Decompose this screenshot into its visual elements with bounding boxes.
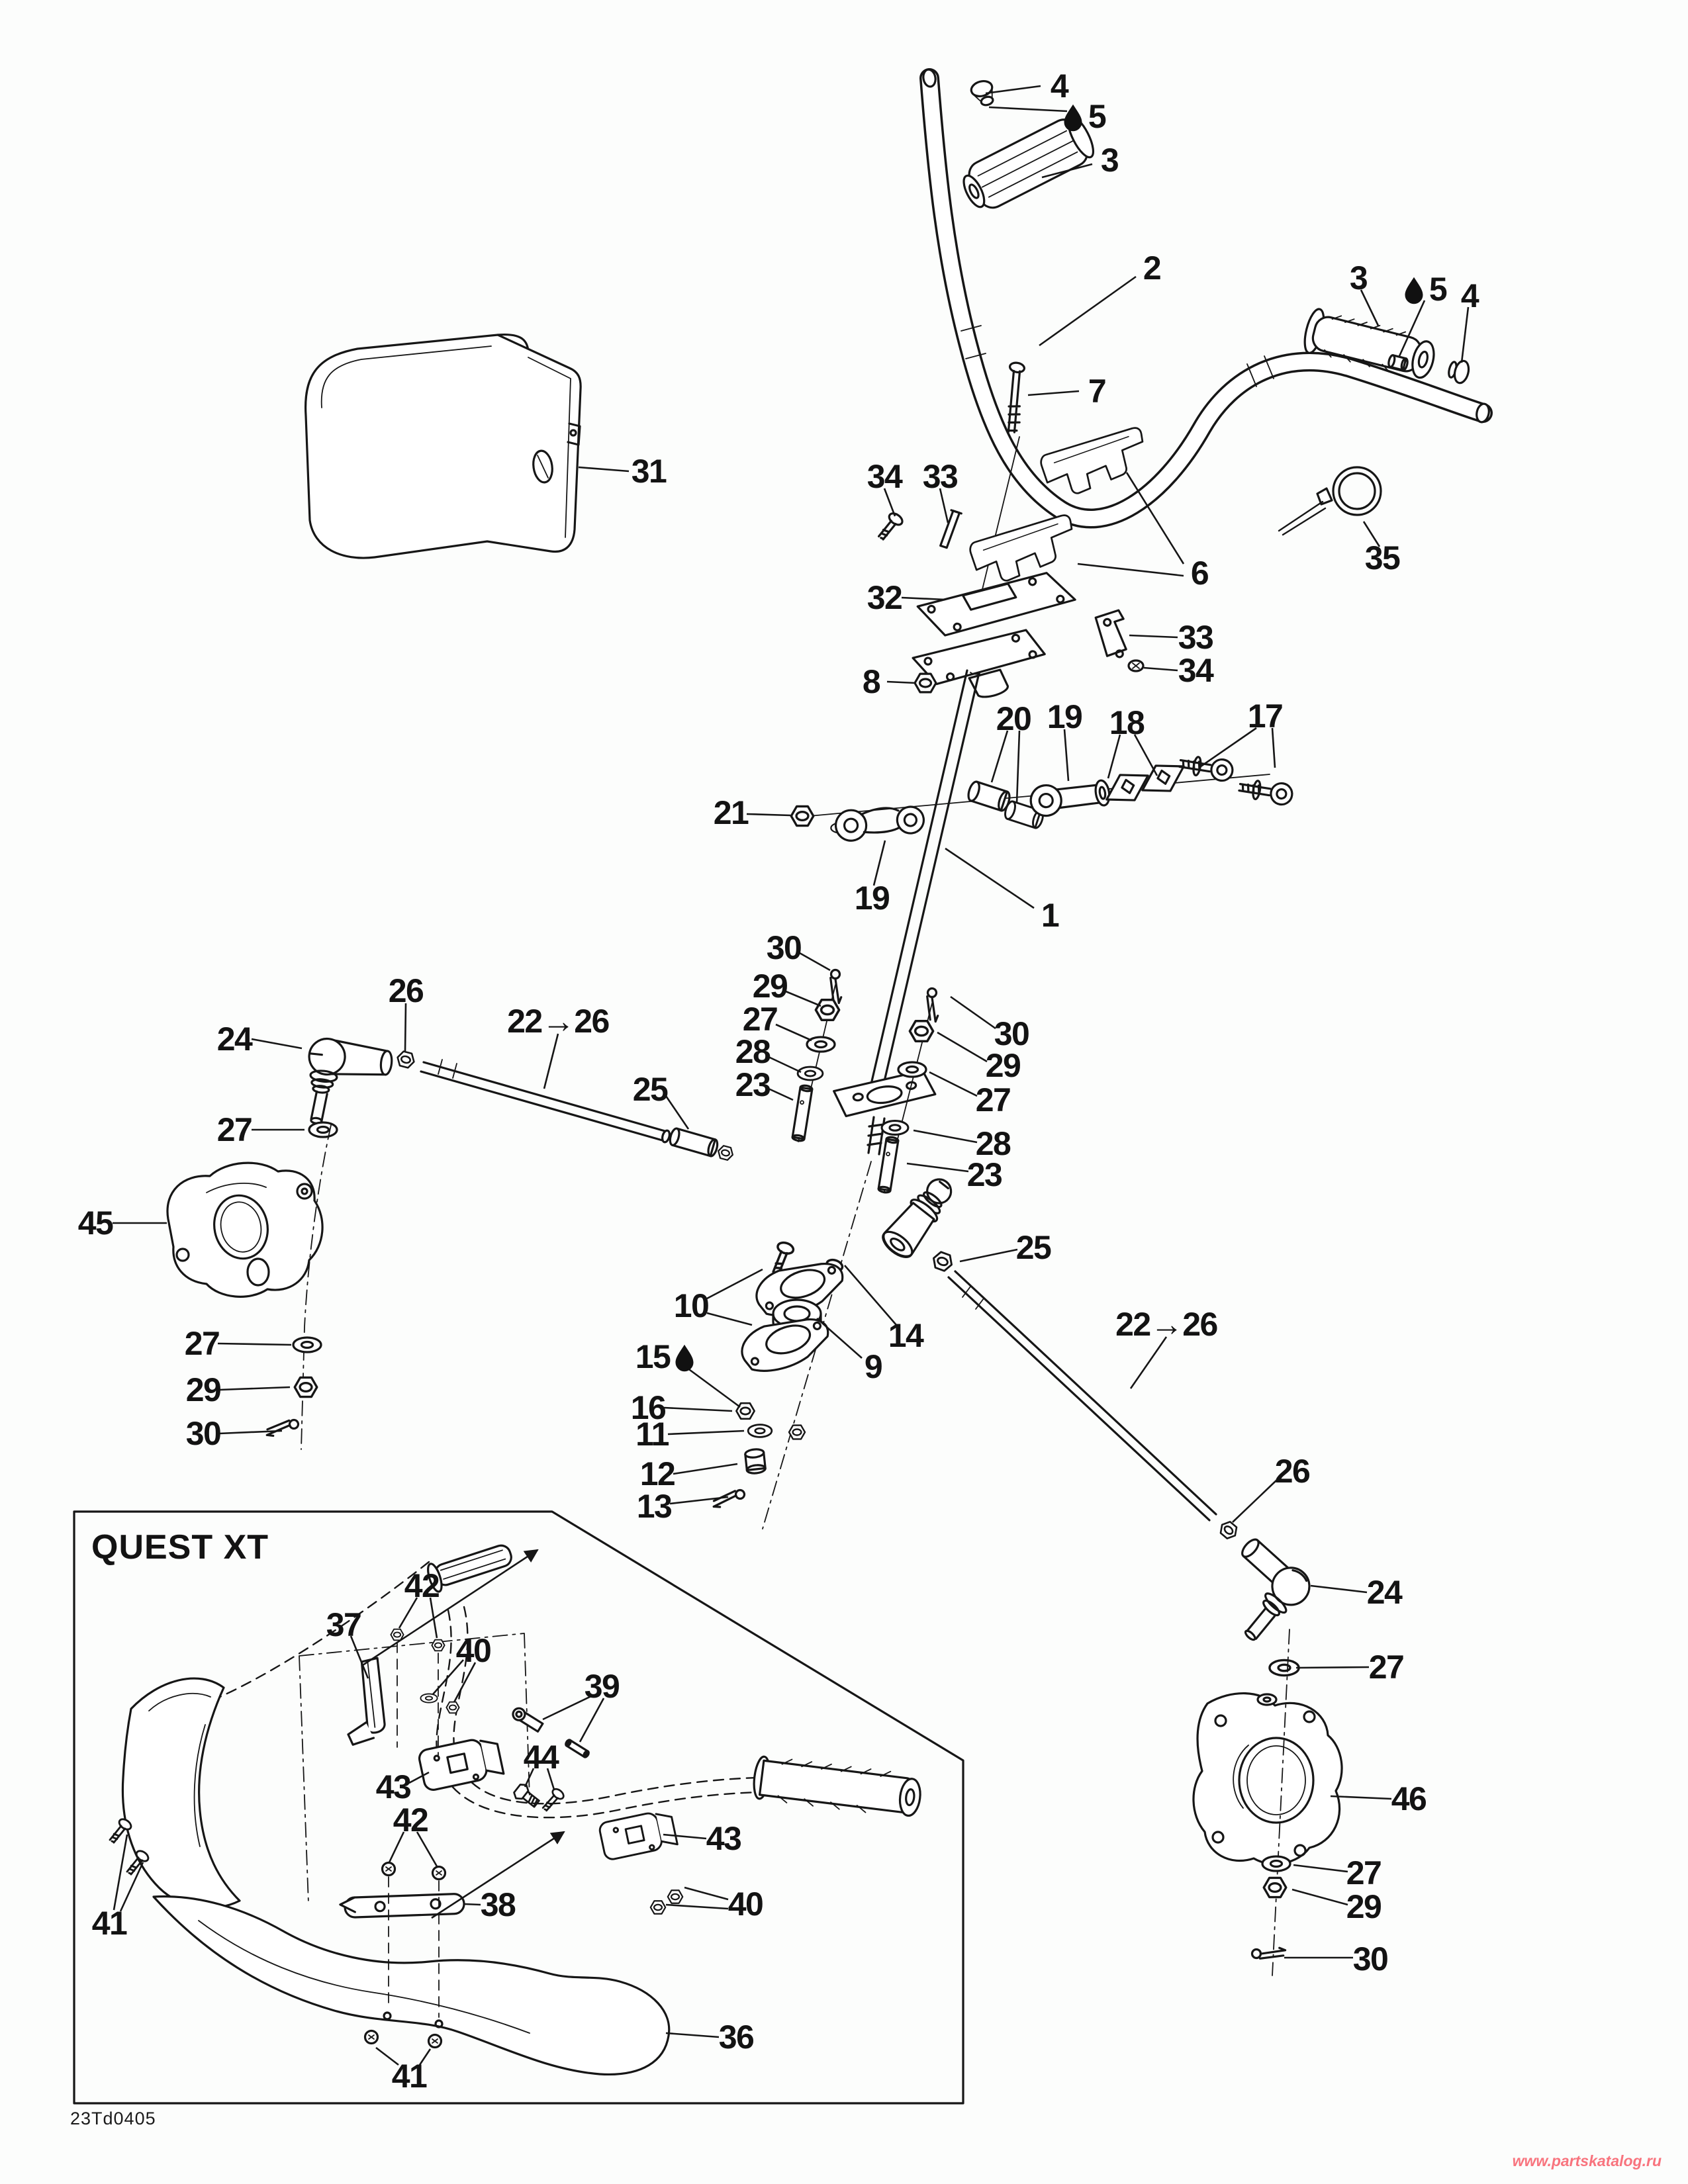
steering-support-plate-lower [912, 628, 1050, 706]
callout-36: 36 [666, 2019, 753, 2056]
callout-40: 40 [666, 1886, 763, 1923]
part-number-label: 10 [674, 1287, 709, 1324]
part-number-label: 29 [1346, 1888, 1382, 1925]
lubricant-droplet-icon [1405, 277, 1423, 304]
callout-14: 14 [845, 1265, 924, 1354]
part-number-label: 31 [632, 453, 667, 490]
callout-30: 30 [186, 1415, 282, 1452]
exploded-diagram-canvas: 4532354731343363532333482019181721191302… [0, 0, 1688, 2184]
part-number-label: 36 [719, 2019, 754, 2056]
callout-10: 10 [674, 1269, 763, 1325]
callout-30: 30 [951, 997, 1029, 1052]
part-number-label: 26 [389, 972, 424, 1009]
leader-line [769, 1089, 793, 1100]
part-number-label: 39 [585, 1668, 620, 1705]
leader-line [405, 1003, 406, 1051]
part-number-label: 27 [1346, 1854, 1382, 1891]
part-number-label: 27 [185, 1325, 220, 1362]
callout-35: 35 [1364, 522, 1400, 576]
callout-17: 17 [1201, 698, 1282, 768]
part-number-label: 19 [855, 880, 890, 917]
leader-line [1331, 1796, 1391, 1799]
part-number-label: 29 [753, 968, 788, 1005]
callout-26: 26 [1233, 1453, 1309, 1522]
leader-line [914, 1130, 977, 1142]
leader-line [1311, 1586, 1367, 1592]
leader-line [951, 997, 996, 1028]
part-number-label: 22→26 [507, 1003, 609, 1040]
inset-title: QUEST XT [91, 1527, 269, 1567]
right-knuckle-stack [1250, 1856, 1290, 1971]
part-number-label: 41 [392, 2058, 427, 2095]
part-number-label: 6 [1191, 555, 1208, 592]
steering-support-plate-upper [915, 570, 1078, 639]
leader-line [937, 1032, 987, 1062]
callout-4: 4 [986, 68, 1069, 105]
leader-line [218, 1343, 291, 1345]
part-number-label: 4 [1461, 277, 1479, 314]
callout-41: 41 [376, 2048, 430, 2095]
link-spacer-a [966, 780, 1011, 812]
part-number-label: 14 [888, 1317, 924, 1354]
callout-22→26: 22→26 [507, 1003, 609, 1089]
part-number-label: 15 [635, 1338, 671, 1375]
column-flange-nut [915, 674, 936, 692]
headlight-housing [306, 335, 581, 559]
leader-line [252, 1039, 302, 1048]
part-number-label: 29 [986, 1047, 1021, 1084]
part-number-label: 34 [1178, 652, 1214, 689]
part-number-label: 42 [404, 1567, 440, 1604]
left-end-cap [970, 79, 996, 108]
leader-line [1462, 307, 1468, 363]
leader-line [1233, 1480, 1276, 1522]
right-jam-nut [1217, 1519, 1240, 1541]
part-number-label: 18 [1109, 704, 1145, 741]
leader-line [684, 1366, 740, 1407]
steering-link-lower [833, 799, 925, 844]
part-number-label: 8 [863, 663, 880, 700]
part-number-label: 33 [923, 458, 958, 495]
callout-18: 18 [1108, 704, 1157, 778]
part-number-label: 20 [996, 700, 1031, 737]
callout-23: 23 [907, 1156, 1002, 1193]
left-tie-rod-end [303, 1037, 394, 1130]
part-number-label: 37 [326, 1606, 361, 1643]
callout-7: 7 [1028, 373, 1105, 410]
part-number-label: 17 [1248, 698, 1283, 735]
callout-46: 46 [1331, 1780, 1426, 1817]
part-number-label: 23 [967, 1156, 1002, 1193]
part-number-label: 27 [743, 1001, 778, 1038]
leader-line [666, 1096, 688, 1129]
callout-29: 29 [186, 1371, 290, 1408]
part-number-label: 40 [456, 1632, 491, 1669]
leader-line [845, 1265, 896, 1325]
leader-line [664, 1408, 732, 1411]
part-number-label: 30 [767, 929, 802, 966]
mount-screw-left [876, 511, 904, 543]
leader-line [465, 1904, 481, 1905]
callout-19: 19 [1047, 698, 1082, 781]
leader-line [887, 682, 915, 683]
leader-line [960, 1250, 1017, 1261]
part-number-label: 24 [217, 1021, 253, 1058]
lubricant-droplet-icon [676, 1345, 694, 1372]
leader-line [992, 731, 1008, 782]
part-number-label: 38 [481, 1886, 516, 1923]
lubricant-droplet-icon [1064, 105, 1082, 132]
steering-link-upper [1029, 776, 1111, 818]
part-number-label: 9 [865, 1348, 882, 1385]
leader-line [1028, 391, 1079, 395]
leader-line [1039, 277, 1136, 345]
leader-line [1064, 729, 1068, 781]
left-rod-sleeve [669, 1128, 719, 1158]
callout-27: 27 [1296, 1649, 1403, 1686]
leader-line [1293, 1865, 1348, 1872]
part-number-label: 3 [1101, 142, 1118, 179]
link-bolt-b [1238, 777, 1293, 806]
handlebar-clamp-upper [1039, 426, 1152, 501]
leader-line [707, 1269, 763, 1298]
support-bracket [1095, 610, 1130, 660]
callout-23: 23 [735, 1066, 793, 1103]
callout-1: 1 [945, 848, 1059, 934]
leader-line [666, 1905, 728, 1909]
leader-line [668, 1431, 744, 1434]
link-nut-21 [791, 806, 814, 825]
callout-42: 42 [389, 1801, 437, 1866]
leader-line [666, 2033, 719, 2037]
callout-29: 29 [1292, 1888, 1381, 1925]
diagram-code: 23Td0405 [70, 2109, 156, 2129]
leader-line [800, 953, 830, 970]
part-number-label: 5 [1429, 271, 1447, 308]
leader-line [1296, 1667, 1369, 1668]
left-steering-knuckle [167, 1163, 322, 1297]
leader-line [1129, 635, 1178, 637]
watermark-link[interactable]: www.partskatalog.ru [1513, 2152, 1662, 2170]
left-jam-nut [396, 1050, 416, 1069]
callout-11: 11 [635, 1416, 744, 1453]
left-knuckle-stack [265, 1338, 321, 1445]
part-number-label: 23 [735, 1066, 771, 1103]
callout-8: 8 [863, 663, 915, 700]
leader-line [1017, 731, 1019, 803]
part-number-label: 3 [1350, 259, 1367, 296]
callout-21: 21 [714, 794, 790, 831]
leader-line [114, 1835, 127, 1910]
part-number-label: 1 [1041, 897, 1059, 934]
callout-25: 25 [960, 1229, 1051, 1266]
part-number-label: 7 [1088, 373, 1105, 410]
parts-diagram-page: 4532354731343363532333482019181721191302… [0, 0, 1688, 2184]
column-threaded-stub [868, 1117, 884, 1154]
inset-dashed-handlebar [218, 1562, 759, 1817]
part-number-label: 44 [524, 1739, 559, 1776]
callout-27: 27 [217, 1111, 305, 1148]
callout-43: 43 [376, 1768, 429, 1805]
part-number-label: 43 [706, 1820, 741, 1857]
leader-line [902, 598, 945, 600]
part-number-label: 30 [1353, 1940, 1388, 1978]
right-tie-rod-end [1201, 1532, 1317, 1648]
part-number-label: 13 [637, 1488, 672, 1525]
left-rod-nut [717, 1145, 735, 1161]
leader-line [786, 991, 821, 1006]
leader-line [1292, 1889, 1348, 1905]
leader-line [707, 1313, 752, 1325]
leader-line [907, 1163, 968, 1171]
inset-bracket-38 [340, 1893, 465, 1918]
callout-30: 30 [767, 929, 830, 970]
leader-line [544, 1034, 558, 1089]
column-bushing [745, 1449, 766, 1475]
leader-line [1078, 564, 1184, 576]
callout-27: 27 [1293, 1854, 1381, 1891]
part-number-label: 25 [1016, 1229, 1051, 1266]
callout-24: 24 [217, 1021, 302, 1058]
right-rod-nut-25 [931, 1250, 955, 1272]
callout-26: 26 [389, 972, 424, 1051]
column-washer [748, 1425, 772, 1437]
part-number-label: 43 [376, 1768, 411, 1805]
leader-line [929, 1072, 977, 1096]
leader-line [684, 1888, 728, 1899]
leader-line [747, 814, 790, 815]
inset-grip-right [752, 1755, 923, 1819]
retaining-pin [940, 510, 962, 549]
leader-line [579, 467, 629, 471]
leader-line [1144, 668, 1178, 670]
part-number-label: 46 [1391, 1780, 1427, 1817]
part-number-label: 21 [714, 794, 749, 831]
part-number-label: 28 [735, 1033, 771, 1070]
part-number-label: 33 [1178, 619, 1213, 656]
leader-line [769, 1057, 801, 1072]
link-bolt-a [1178, 753, 1234, 782]
leader-line [989, 107, 1067, 111]
callout-45: 45 [78, 1205, 167, 1242]
callout-39: 39 [543, 1668, 619, 1742]
inset-handguard-wing [122, 1678, 240, 1908]
part-number-label: 34 [867, 458, 903, 495]
leader-line [945, 848, 1034, 908]
part-number-label: 5 [1088, 98, 1106, 135]
leader-line [673, 1464, 737, 1474]
part-number-label: 22→26 [1115, 1306, 1217, 1343]
callout-2: 2 [1039, 250, 1160, 345]
part-number-label: 41 [92, 1905, 127, 1942]
part-number-label: 12 [640, 1455, 675, 1492]
part-number-label: 27 [976, 1081, 1011, 1118]
leader-line [219, 1387, 290, 1390]
callout-22→26: 22→26 [1115, 1306, 1217, 1388]
leader-line [986, 86, 1041, 93]
callout-25: 25 [633, 1071, 688, 1129]
callout-31: 31 [579, 453, 667, 490]
callout-30: 30 [1284, 1940, 1387, 1978]
part-number-label: 27 [217, 1111, 252, 1148]
part-number-label: 2 [1143, 250, 1160, 287]
callout-4: 4 [1461, 277, 1479, 363]
callout-34: 34 [1144, 652, 1214, 689]
inset-bumper-guard [154, 1897, 669, 2075]
callout-19: 19 [855, 841, 890, 917]
leader-line [874, 841, 885, 886]
part-number-label: 40 [728, 1886, 763, 1923]
callout-27: 27 [185, 1325, 291, 1362]
callout-34: 34 [867, 458, 903, 516]
part-number-label: 27 [1369, 1649, 1404, 1686]
part-number-label: 30 [186, 1415, 221, 1452]
column-lock-nut-b [789, 1426, 805, 1439]
leader-line [1131, 1337, 1166, 1388]
part-number-label: 35 [1365, 539, 1400, 576]
callout-24: 24 [1311, 1574, 1403, 1611]
callout-33: 33 [1129, 619, 1213, 656]
part-number-label: 29 [186, 1371, 221, 1408]
mount-screw-right [1129, 660, 1143, 671]
right-end-cap [1446, 358, 1470, 385]
part-number-label: 45 [78, 1205, 113, 1242]
part-number-label: 32 [867, 579, 902, 616]
leader-line [776, 1024, 812, 1040]
part-number-label: 42 [393, 1801, 428, 1839]
part-number-label: 19 [1047, 698, 1082, 735]
right-steering-knuckle [1194, 1694, 1342, 1864]
left-stud-washer [309, 1122, 337, 1137]
part-number-label: 26 [1275, 1453, 1310, 1490]
part-number-label: 11 [635, 1416, 669, 1453]
part-number-label: 24 [1367, 1574, 1403, 1611]
inset-clamp-43-left [418, 1735, 504, 1792]
callout-3: 3 [1350, 259, 1378, 326]
left-knuckle-axis [301, 1125, 331, 1449]
part-number-label: 25 [633, 1071, 668, 1108]
part-number-label: 4 [1051, 68, 1069, 105]
right-stud-washer [1270, 1660, 1299, 1675]
callout-12: 12 [640, 1455, 737, 1492]
